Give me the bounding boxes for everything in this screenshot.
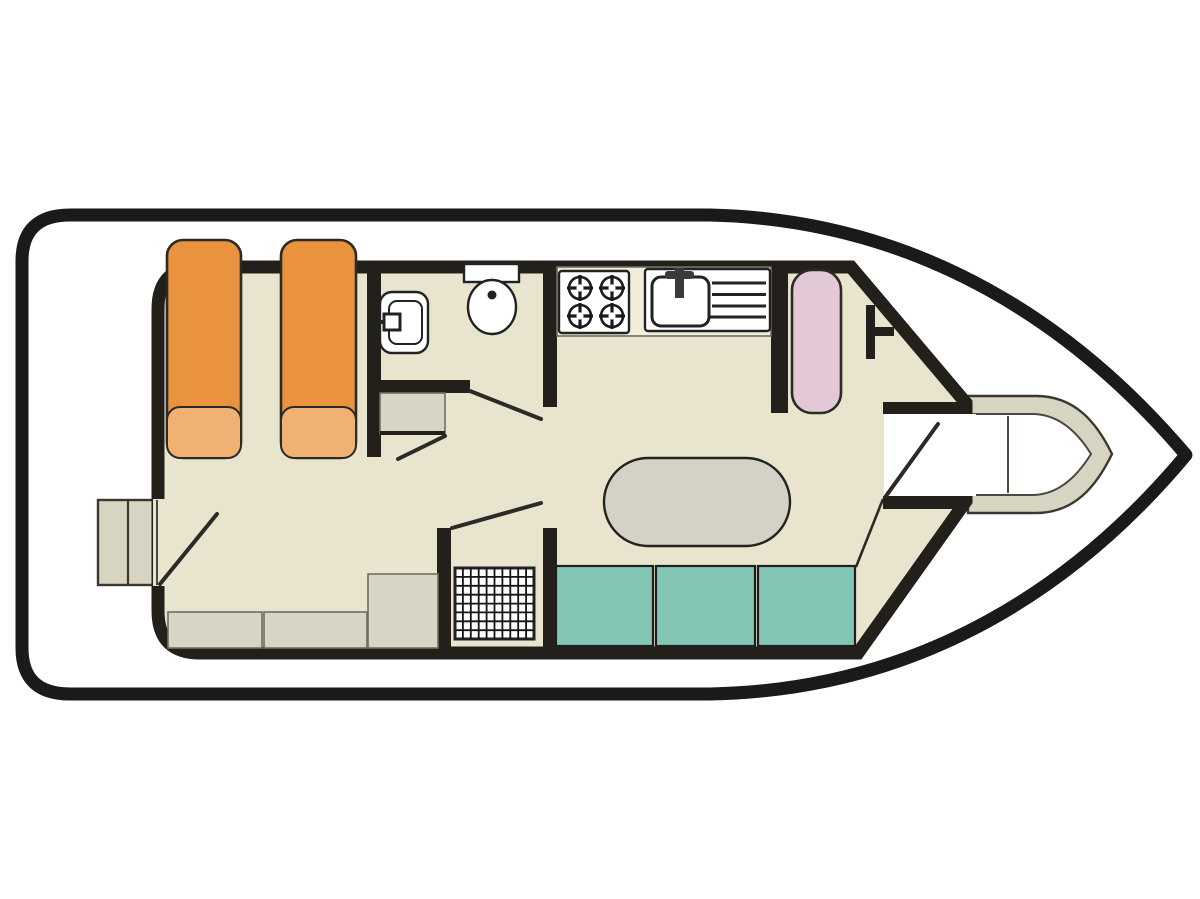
wall-shower-left <box>437 528 451 653</box>
berth-2-pillow <box>281 407 356 458</box>
dinette-seat-2 <box>656 566 755 646</box>
dinette-seat-1 <box>556 566 653 646</box>
berth-1-pillow <box>167 407 241 458</box>
side-berth-icon <box>792 270 841 413</box>
bow-door-opening <box>884 414 976 496</box>
helm-arm-icon <box>875 327 894 336</box>
toilet-flush-dot <box>488 291 497 300</box>
washbasin-tap <box>384 314 400 330</box>
faucet-handle <box>665 271 694 279</box>
helm-post-icon <box>866 305 875 359</box>
stern-bench-2 <box>264 612 367 648</box>
dinette-table-icon <box>604 458 790 546</box>
floor-plan-canvas <box>0 0 1200 899</box>
wall-bedroom-divider <box>367 261 381 457</box>
wall-galley-right <box>771 261 788 413</box>
toilet-icon <box>468 280 516 334</box>
side-bench <box>368 574 438 648</box>
dinette-seat-3 <box>758 566 855 646</box>
bow-door-top-frame <box>883 402 968 414</box>
stern-bench-1 <box>168 612 262 648</box>
floor-plan-svg <box>0 0 1200 899</box>
wall-bathroom-bottom <box>374 380 470 393</box>
wall-bathroom-galley <box>543 261 557 407</box>
wardrobe-icon <box>380 393 445 434</box>
bow-door-bottom-frame <box>883 496 968 509</box>
